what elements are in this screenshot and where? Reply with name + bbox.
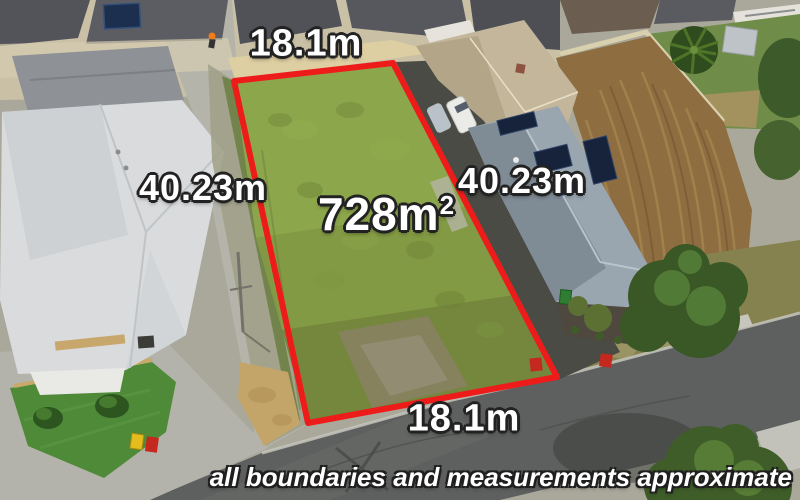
bottom-width-label: 18.1m — [408, 398, 521, 441]
lot-area-superscript: 2 — [440, 190, 454, 220]
red-wheelie-bin — [529, 357, 542, 371]
red-wheelie-bin — [145, 436, 159, 453]
lot-area-label: 728m2 — [318, 187, 454, 241]
top-width-label: 18.1m — [250, 23, 363, 66]
yellow-wheelie-bin — [130, 433, 144, 450]
aerial-photo — [0, 0, 800, 500]
disclaimer-text: all boundaries and measurements approxim… — [210, 462, 792, 493]
lot-area-value: 728m — [318, 188, 440, 240]
red-wheelie-bin — [599, 353, 613, 368]
palm-tree — [670, 26, 718, 74]
right-length-label: 40.23m — [458, 160, 586, 202]
garden-shed — [722, 26, 757, 56]
left-length-label: 40.23m — [139, 167, 267, 209]
real-estate-aerial-photo: 18.1m 40.23m 40.23m 728m2 18.1m all boun… — [0, 0, 800, 500]
